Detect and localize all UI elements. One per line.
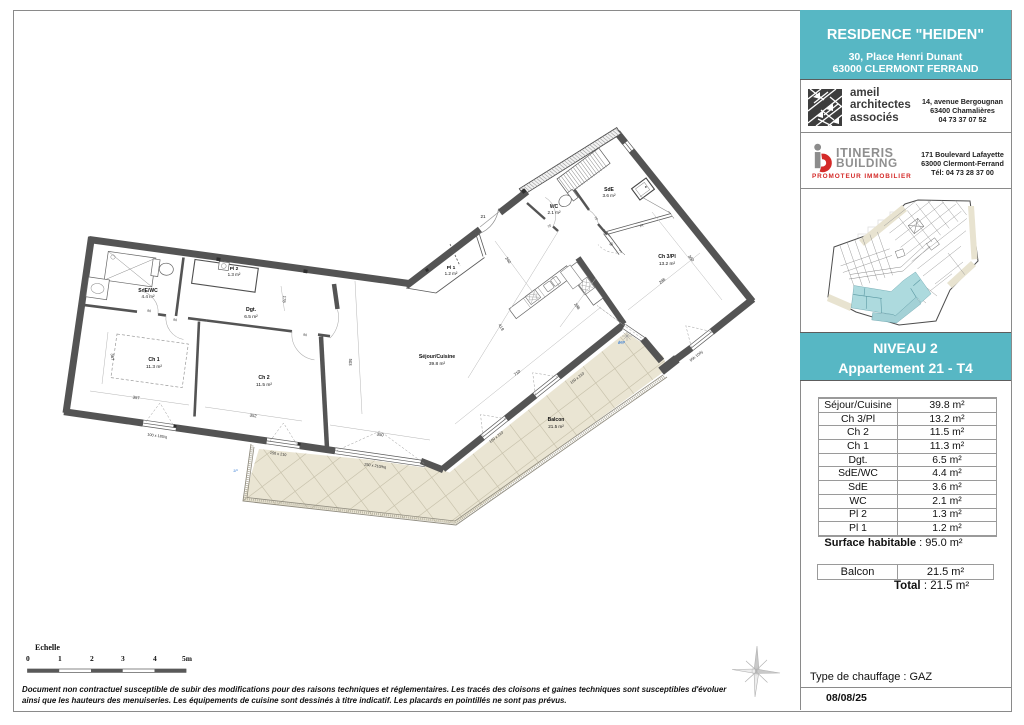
svg-text:1.3 m²: 1.3 m² bbox=[228, 272, 241, 277]
svg-text:1.2 m²: 1.2 m² bbox=[445, 271, 458, 276]
svg-text:70: 70 bbox=[593, 216, 599, 222]
svg-text:39.8 m²: 39.8 m² bbox=[429, 361, 446, 367]
svg-text:360: 360 bbox=[687, 254, 696, 263]
svg-text:11.3 m²: 11.3 m² bbox=[146, 364, 162, 370]
svg-text:90: 90 bbox=[173, 318, 177, 323]
svg-text:6.5 m²: 6.5 m² bbox=[244, 314, 258, 320]
svg-text:357: 357 bbox=[132, 395, 140, 401]
svg-text:Ch 1: Ch 1 bbox=[148, 357, 159, 363]
svg-text:Ch 2: Ch 2 bbox=[258, 375, 269, 381]
svg-text:296: 296 bbox=[658, 276, 667, 285]
svg-text:70: 70 bbox=[547, 223, 553, 229]
svg-text:2.1 m²: 2.1 m² bbox=[547, 210, 560, 215]
svg-text:90: 90 bbox=[609, 241, 615, 247]
svg-text:100 x 185/q: 100 x 185/q bbox=[147, 433, 167, 440]
svg-text:Dgt.: Dgt. bbox=[246, 307, 257, 313]
svg-text:367: 367 bbox=[110, 353, 116, 361]
svg-text:90: 90 bbox=[303, 333, 307, 338]
svg-text:710: 710 bbox=[513, 368, 522, 377]
svg-text:1P: 1P bbox=[233, 468, 238, 473]
svg-text:419: 419 bbox=[497, 323, 505, 332]
svg-text:90: 90 bbox=[147, 309, 151, 314]
svg-text:Ch 3/Pl: Ch 3/Pl bbox=[658, 254, 676, 260]
svg-text:352: 352 bbox=[249, 413, 257, 419]
svg-text:503: 503 bbox=[348, 358, 353, 366]
svg-text:350: 350 bbox=[376, 432, 384, 438]
svg-text:178: 178 bbox=[282, 295, 288, 303]
svg-text:Séjour/Cuisine: Séjour/Cuisine bbox=[419, 354, 455, 360]
svg-text:21: 21 bbox=[480, 214, 486, 219]
svg-text:298: 298 bbox=[573, 302, 582, 311]
svg-text:11.5 m²: 11.5 m² bbox=[256, 382, 272, 388]
svg-text:3.6 m²: 3.6 m² bbox=[602, 193, 615, 198]
svg-text:21.5 m²: 21.5 m² bbox=[548, 424, 564, 429]
svg-text:13.2 m²: 13.2 m² bbox=[659, 261, 676, 267]
svg-text:Balcon: Balcon bbox=[548, 417, 565, 423]
